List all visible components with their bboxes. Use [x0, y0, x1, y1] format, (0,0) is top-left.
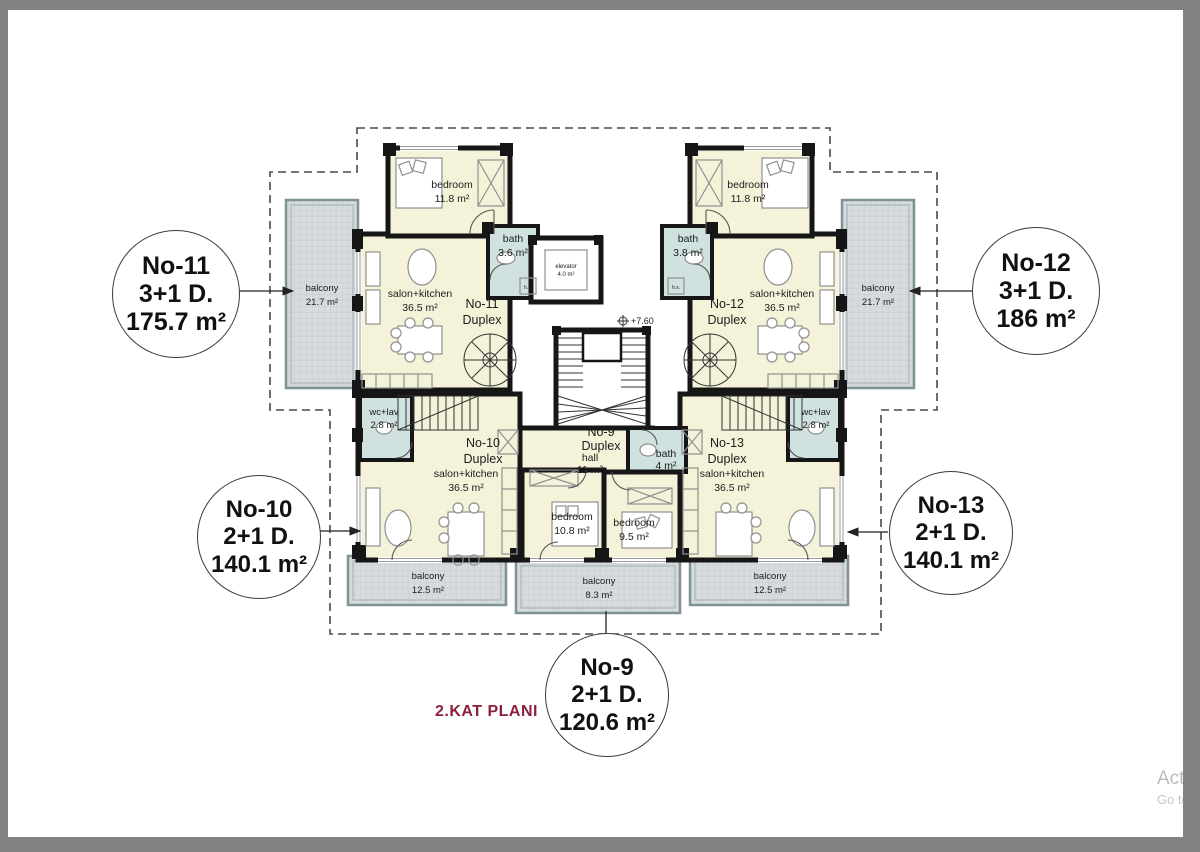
room-label-salon-ne: salon+kitchen	[750, 288, 815, 300]
room-label-balcony-se: balcony	[754, 571, 787, 582]
unit-badge-no10-type: 2+1 D.	[223, 523, 294, 550]
room-area-bedroom-s1: 10.8 m²	[554, 525, 590, 537]
room-label-bath-s: bath	[656, 448, 677, 460]
room-area-bedroom-s2: 9.5 m²	[619, 531, 649, 543]
room-area-balcony-w: 21.7 m²	[306, 297, 338, 308]
unit-badge-no9-type: 2+1 D.	[571, 681, 642, 708]
unit-badge-no10: No-10 2+1 D. 140.1 m²	[197, 475, 321, 599]
unit-sublabel-no11-duplex: Duplex	[463, 313, 503, 327]
room-label-bedroom-ne: bedroom	[727, 179, 769, 191]
room-area-hall: 11 m²	[577, 464, 604, 476]
room-label-balcony-sw: balcony	[412, 571, 445, 582]
unit-badge-no13-type: 2+1 D.	[915, 519, 986, 546]
room-label-balcony-w: balcony	[306, 283, 339, 294]
balcony-west	[286, 200, 358, 388]
unit-badge-no10-number: No-10	[226, 496, 293, 523]
unit-badge-no10-area: 140.1 m²	[211, 551, 307, 578]
no12-winder-stair	[684, 334, 736, 386]
unit-label-no12-duplex: No-12	[710, 297, 744, 311]
room-area-salon-nw: 36.5 m²	[402, 302, 438, 314]
room-label-bedroom-s2: bedroom	[613, 517, 655, 529]
room-label-salon-sw: salon+kitchen	[434, 468, 499, 480]
unit-badge-no11-type: 3+1 D.	[139, 280, 213, 308]
room-label-elevator: elevator	[555, 264, 576, 270]
room-area-salon-ne: 36.5 m²	[764, 302, 800, 314]
page-frame-right	[1183, 0, 1200, 852]
page-frame-bottom	[0, 837, 1200, 852]
unit-badge-no11-number: No-11	[142, 252, 210, 280]
unit-sublabel-no13-duplex: Duplex	[708, 452, 748, 466]
room-label-salon-se: salon+kitchen	[700, 468, 765, 480]
unit-badge-no12: No-12 3+1 D. 186 m²	[972, 227, 1100, 355]
unit-badge-no12-type: 3+1 D.	[999, 277, 1073, 305]
room-label-bath-ne: bath	[678, 233, 699, 245]
room-area-salon-se: 36.5 m²	[714, 482, 750, 494]
unit-sublabel-no9-duplex: Duplex	[582, 439, 622, 453]
room-label-salon-nw: salon+kitchen	[388, 288, 453, 300]
room-label-bedroom-s1: bedroom	[551, 511, 593, 523]
unit-badge-no11: No-11 3+1 D. 175.7 m²	[112, 230, 240, 358]
room-label-bath-nw: bath	[503, 233, 524, 245]
plan-title: 2.KAT PLANI	[435, 703, 538, 721]
room-area-balcony-sw: 12.5 m²	[412, 585, 444, 596]
unit-badge-no13-area: 140.1 m²	[903, 547, 999, 574]
room-area-balcony-s: 8.3 m²	[586, 590, 613, 601]
page-frame-top	[0, 0, 1200, 10]
room-area-elevator: 4.0 m²	[557, 272, 574, 278]
unit-label-no11-duplex: No-11	[465, 297, 498, 311]
unit-badge-no9-area: 120.6 m²	[559, 709, 655, 736]
room-area-balcony-e: 21.7 m²	[862, 297, 894, 308]
room-area-bedroom-nw: 11.8 m²	[435, 193, 470, 205]
unit-badge-no11-area: 175.7 m²	[126, 308, 226, 336]
room-area-wclav-w: 2.8 m²	[371, 420, 398, 431]
unit-badge-no13: No-13 2+1 D. 140.1 m²	[889, 471, 1013, 595]
room-label-wclav-e: wc+lav	[800, 407, 831, 418]
room-area-bath-ne: 3.8 m²	[673, 247, 703, 259]
unit-sublabel-no12-duplex: Duplex	[708, 313, 748, 327]
no11-winder-stair	[464, 334, 516, 386]
floor-plan-page: bedroom 11.8 m² bath 3.6 m² elevator 4.0…	[0, 0, 1200, 852]
room-area-balcony-se: 12.5 m²	[754, 585, 786, 596]
core-elevator-shaft	[520, 238, 684, 302]
room-label-hall: hall	[582, 452, 598, 464]
unit-badge-no9-number: No-9	[580, 654, 633, 681]
room-area-bedroom-ne: 11.8 m²	[731, 193, 766, 205]
room-area-salon-sw: 36.5 m²	[448, 482, 484, 494]
balcony-east	[842, 200, 914, 388]
room-area-bath-nw: 3.6 m²	[498, 247, 528, 259]
unit-sublabel-no10-duplex: Duplex	[464, 452, 504, 466]
room-area-bath-s: 4 m²	[656, 460, 678, 472]
shaft-label-left: h.s.	[524, 285, 532, 291]
room-label-wclav-w: wc+lav	[368, 407, 399, 418]
shaft-label-right: h.s.	[672, 285, 680, 291]
unit-badge-no12-area: 186 m²	[996, 305, 1075, 333]
unit-label-no9-duplex: No-9	[587, 425, 614, 439]
unit-label-no10-duplex: No-10	[466, 436, 500, 450]
elevation-marker	[617, 315, 629, 327]
elevation-label: +7.60	[631, 316, 654, 326]
room-label-balcony-s: balcony	[583, 576, 616, 587]
unit-badge-no13-number: No-13	[918, 492, 985, 519]
unit-badge-no12-number: No-12	[1001, 249, 1070, 277]
unit-label-no13-duplex: No-13	[710, 436, 744, 450]
room-label-bedroom-nw: bedroom	[431, 179, 473, 191]
unit-badge-no9: No-9 2+1 D. 120.6 m²	[545, 633, 669, 757]
page-frame-left	[0, 0, 8, 852]
room-area-wclav-e: 2.8 m²	[803, 420, 830, 431]
balcony-south	[516, 561, 680, 613]
room-label-balcony-e: balcony	[862, 283, 895, 294]
